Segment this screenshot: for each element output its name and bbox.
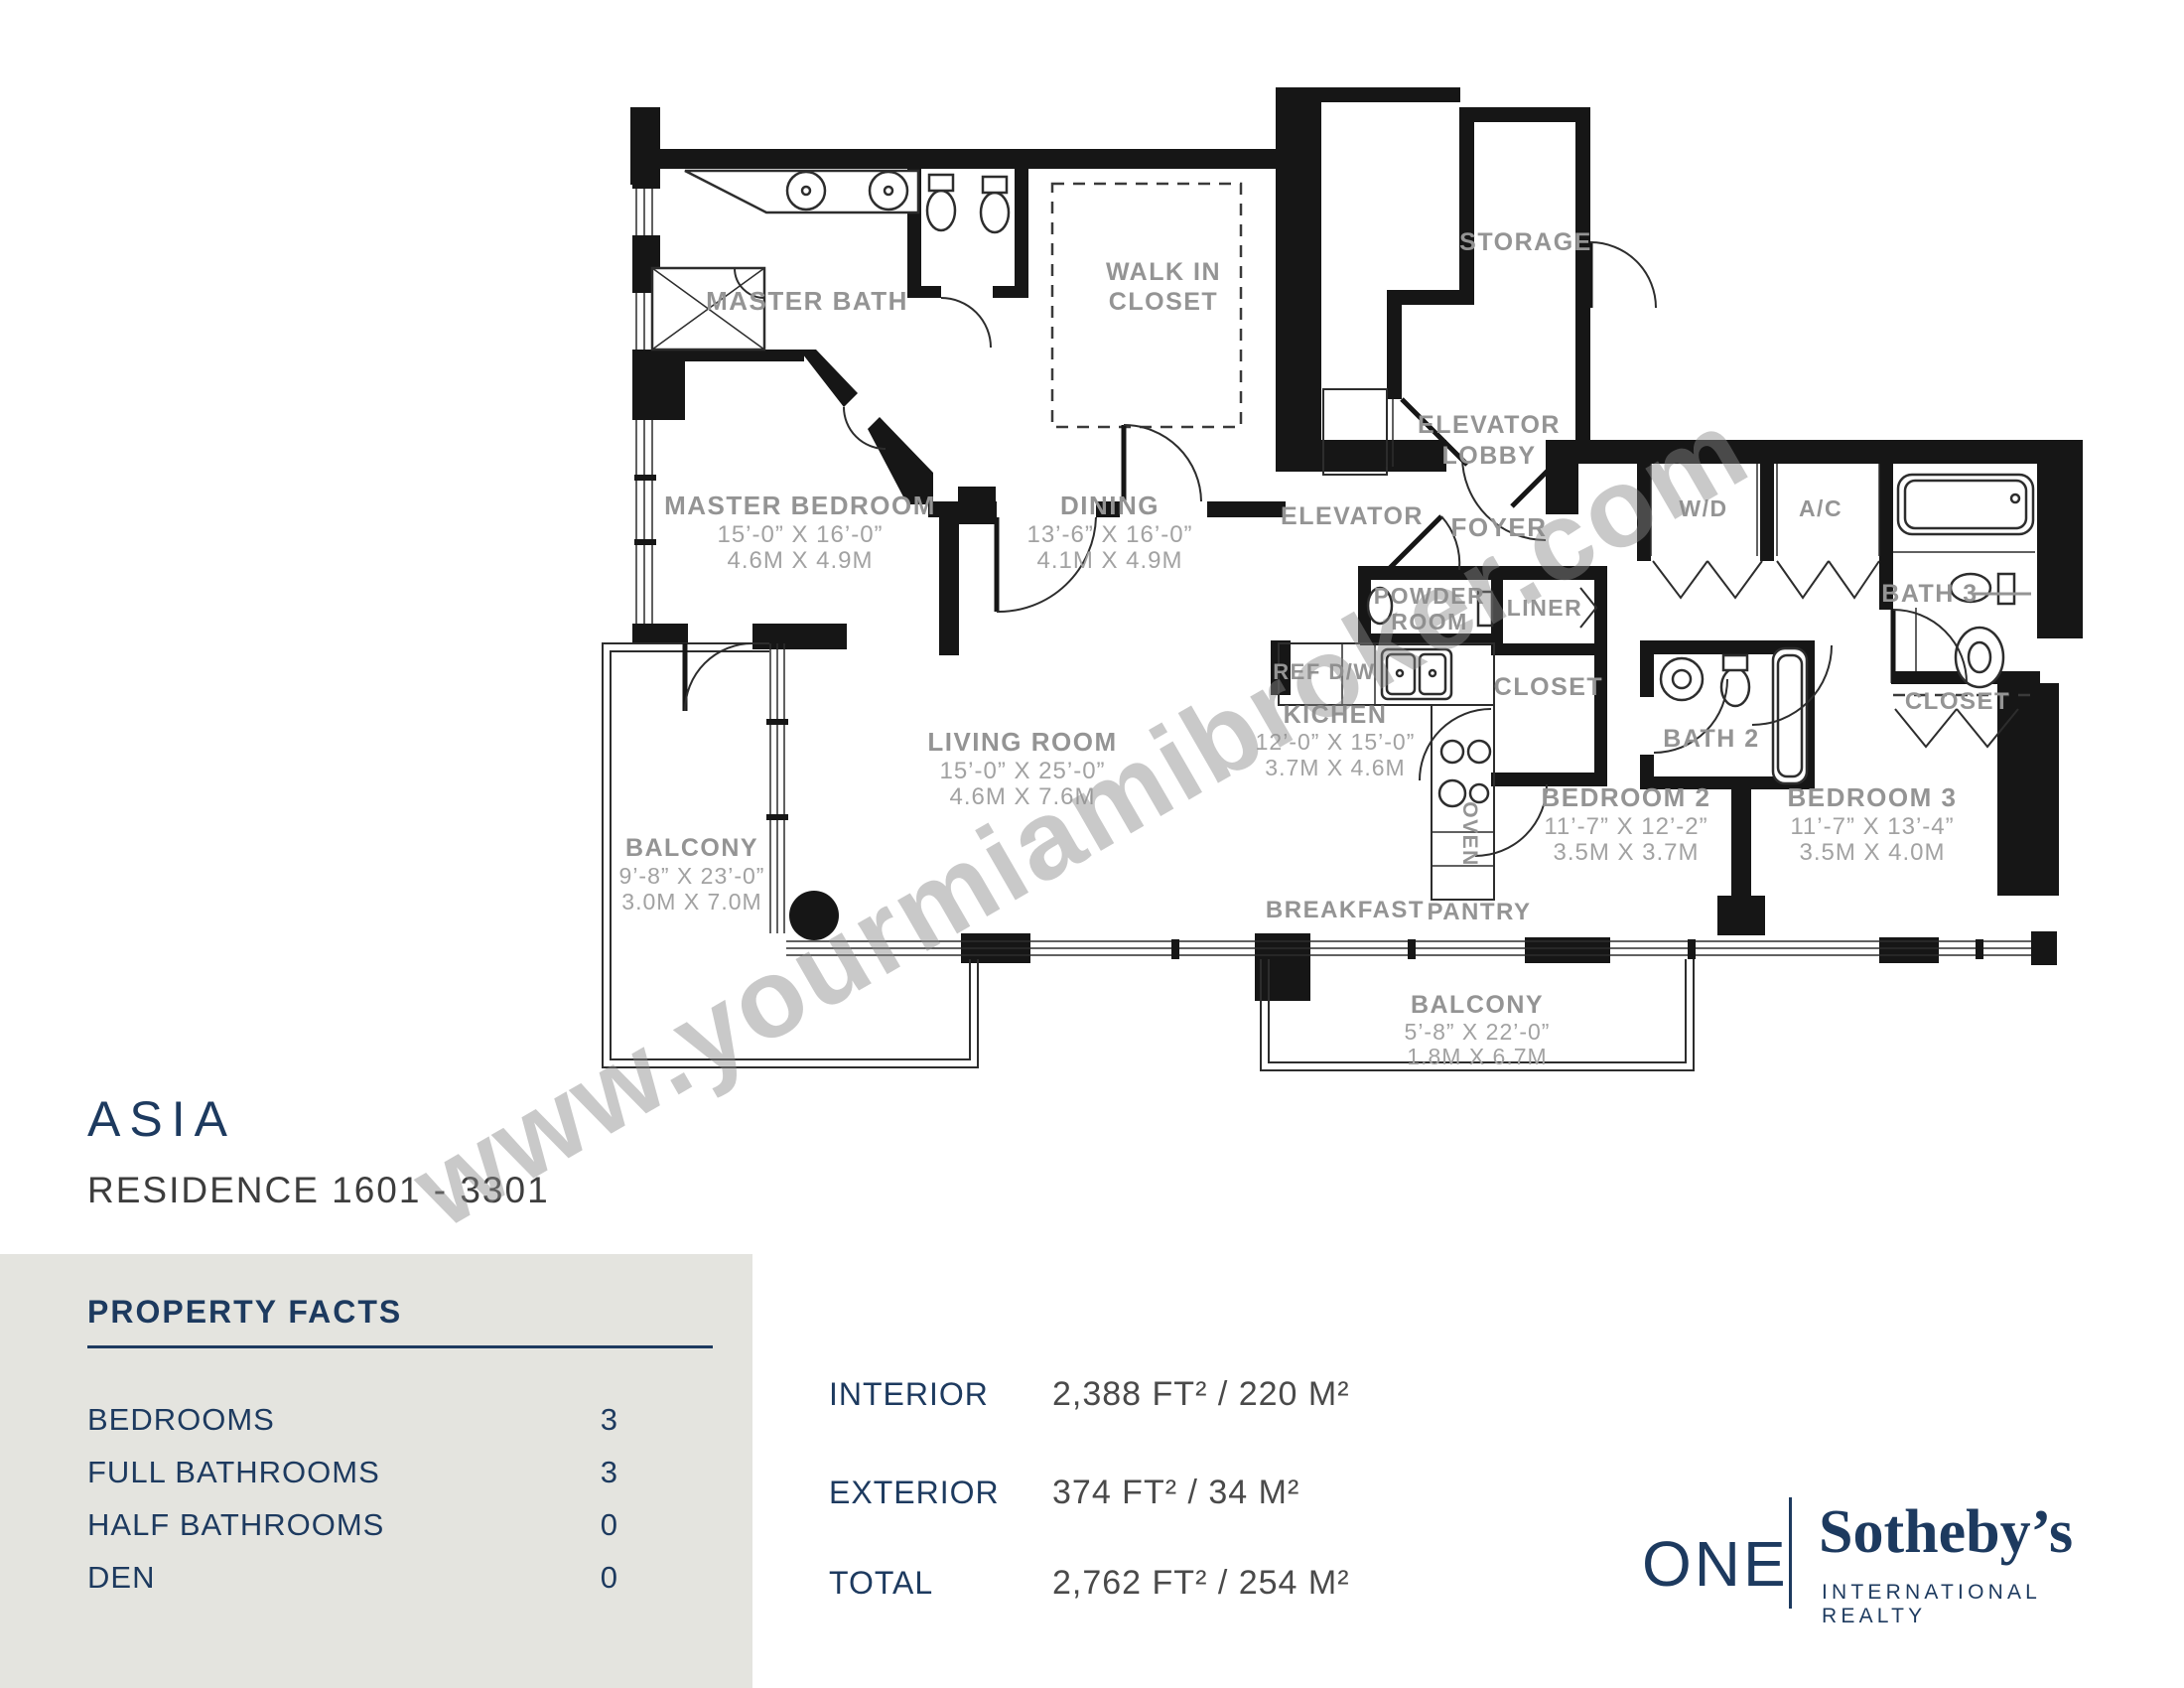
dims-dining-m: 4.1M X 4.9M bbox=[1036, 547, 1182, 574]
unit-title: ASIA bbox=[87, 1090, 236, 1148]
logo-one: ONE bbox=[1642, 1527, 1789, 1601]
area-label: EXTERIOR bbox=[829, 1475, 1052, 1511]
facts-label: DEN bbox=[87, 1551, 155, 1604]
label-elevator: ELEVATOR bbox=[1281, 502, 1424, 530]
property-facts-heading: PROPERTY FACTS bbox=[87, 1294, 402, 1331]
area-value: 374 FT² / 34 M² bbox=[1052, 1474, 1299, 1512]
label-bedroom3: BEDROOM 3 bbox=[1788, 782, 1958, 812]
logo-subtitle: INTERNATIONAL REALTY bbox=[1822, 1581, 2040, 1628]
facts-row-den: DEN 0 bbox=[87, 1551, 618, 1604]
area-label: TOTAL bbox=[829, 1565, 1052, 1602]
area-summary: INTERIOR 2,388 FT² / 220 M² EXTERIOR 374… bbox=[829, 1375, 1350, 1662]
facts-row-full-bathrooms: FULL BATHROOMS 3 bbox=[87, 1446, 618, 1498]
logo-divider bbox=[1789, 1497, 1792, 1609]
label-bedroom2: BEDROOM 2 bbox=[1542, 782, 1711, 812]
label-dining: DINING bbox=[1060, 491, 1160, 520]
facts-label: HALF BATHROOMS bbox=[87, 1498, 384, 1551]
label-walk-in-closet-2: CLOSET bbox=[1109, 288, 1218, 316]
facts-value: 3 bbox=[601, 1446, 618, 1498]
dims-master-bedroom-ft: 15’-0” X 16’-0” bbox=[717, 521, 883, 548]
label-walk-in-closet-1: WALK IN bbox=[1106, 258, 1221, 286]
dims-balcony-left-ft: 9’-8” X 23’-0” bbox=[619, 863, 765, 889]
label-bath2: BATH 2 bbox=[1663, 725, 1759, 753]
label-bath3: BATH 3 bbox=[1881, 580, 1978, 608]
facts-value: 0 bbox=[601, 1551, 618, 1604]
label-balcony-left: BALCONY bbox=[625, 834, 758, 862]
floorplan-sheet: MASTER BATH WALK IN CLOSET STORAGE ELEVA… bbox=[0, 0, 2184, 1688]
label-closet-hall: CLOSET bbox=[1494, 673, 1603, 701]
dims-master-bedroom-m: 4.6M X 4.9M bbox=[727, 547, 873, 574]
dims-bedroom3-ft: 11’-7” X 13’-4” bbox=[1790, 813, 1954, 840]
dims-balcony-bottom-m: 1.8M X 6.7M bbox=[1407, 1044, 1547, 1069]
dims-bedroom3-m: 3.5M X 4.0M bbox=[1799, 839, 1945, 866]
area-row-interior: INTERIOR 2,388 FT² / 220 M² bbox=[829, 1375, 1350, 1414]
dims-balcony-left-m: 3.0M X 7.0M bbox=[621, 889, 761, 914]
area-label: INTERIOR bbox=[829, 1376, 1052, 1413]
area-row-exterior: EXTERIOR 374 FT² / 34 M² bbox=[829, 1474, 1350, 1512]
label-oven: OVEN bbox=[1458, 801, 1481, 867]
label-closet-bed3: CLOSET bbox=[1905, 688, 2010, 715]
area-row-total: TOTAL 2,762 FT² / 254 M² bbox=[829, 1564, 1350, 1603]
facts-row-bedrooms: BEDROOMS 3 bbox=[87, 1393, 618, 1446]
label-storage: STORAGE bbox=[1459, 228, 1592, 256]
label-elevator-lobby-1: ELEVATOR bbox=[1418, 411, 1561, 439]
dims-balcony-bottom-ft: 5’-8” X 22’-0” bbox=[1405, 1019, 1551, 1045]
property-facts-rows: BEDROOMS 3 FULL BATHROOMS 3 HALF BATHROO… bbox=[87, 1393, 618, 1604]
label-ac: A/C bbox=[1799, 495, 1843, 521]
property-facts-panel: PROPERTY FACTS BEDROOMS 3 FULL BATHROOMS… bbox=[0, 1254, 752, 1688]
facts-row-half-bathrooms: HALF BATHROOMS 0 bbox=[87, 1498, 618, 1551]
label-master-bath: MASTER BATH bbox=[706, 286, 908, 316]
label-elevator-lobby-2: LOBBY bbox=[1442, 442, 1537, 470]
facts-label: BEDROOMS bbox=[87, 1393, 275, 1446]
label-breakfast: BREAKFAST bbox=[1266, 897, 1425, 923]
area-value: 2,762 FT² / 254 M² bbox=[1052, 1564, 1350, 1603]
facts-value: 0 bbox=[601, 1498, 618, 1551]
dims-bedroom2-ft: 11’-7” X 12’-2” bbox=[1544, 813, 1707, 840]
property-facts-rule bbox=[87, 1345, 713, 1348]
area-value: 2,388 FT² / 220 M² bbox=[1052, 1375, 1350, 1414]
floorplan-drawing: MASTER BATH WALK IN CLOSET STORAGE ELEVA… bbox=[0, 0, 2184, 1072]
dims-dining-ft: 13’-6” X 16’-0” bbox=[1026, 521, 1192, 548]
dims-bedroom2-m: 3.5M X 3.7M bbox=[1553, 839, 1699, 866]
label-pantry: PANTRY bbox=[1428, 899, 1532, 925]
label-master-bedroom: MASTER BEDROOM bbox=[664, 491, 936, 520]
label-balcony-bottom: BALCONY bbox=[1411, 991, 1544, 1019]
logo-brand: Sotheby’s bbox=[1819, 1497, 2073, 1568]
facts-value: 3 bbox=[601, 1393, 618, 1446]
facts-label: FULL BATHROOMS bbox=[87, 1446, 380, 1498]
